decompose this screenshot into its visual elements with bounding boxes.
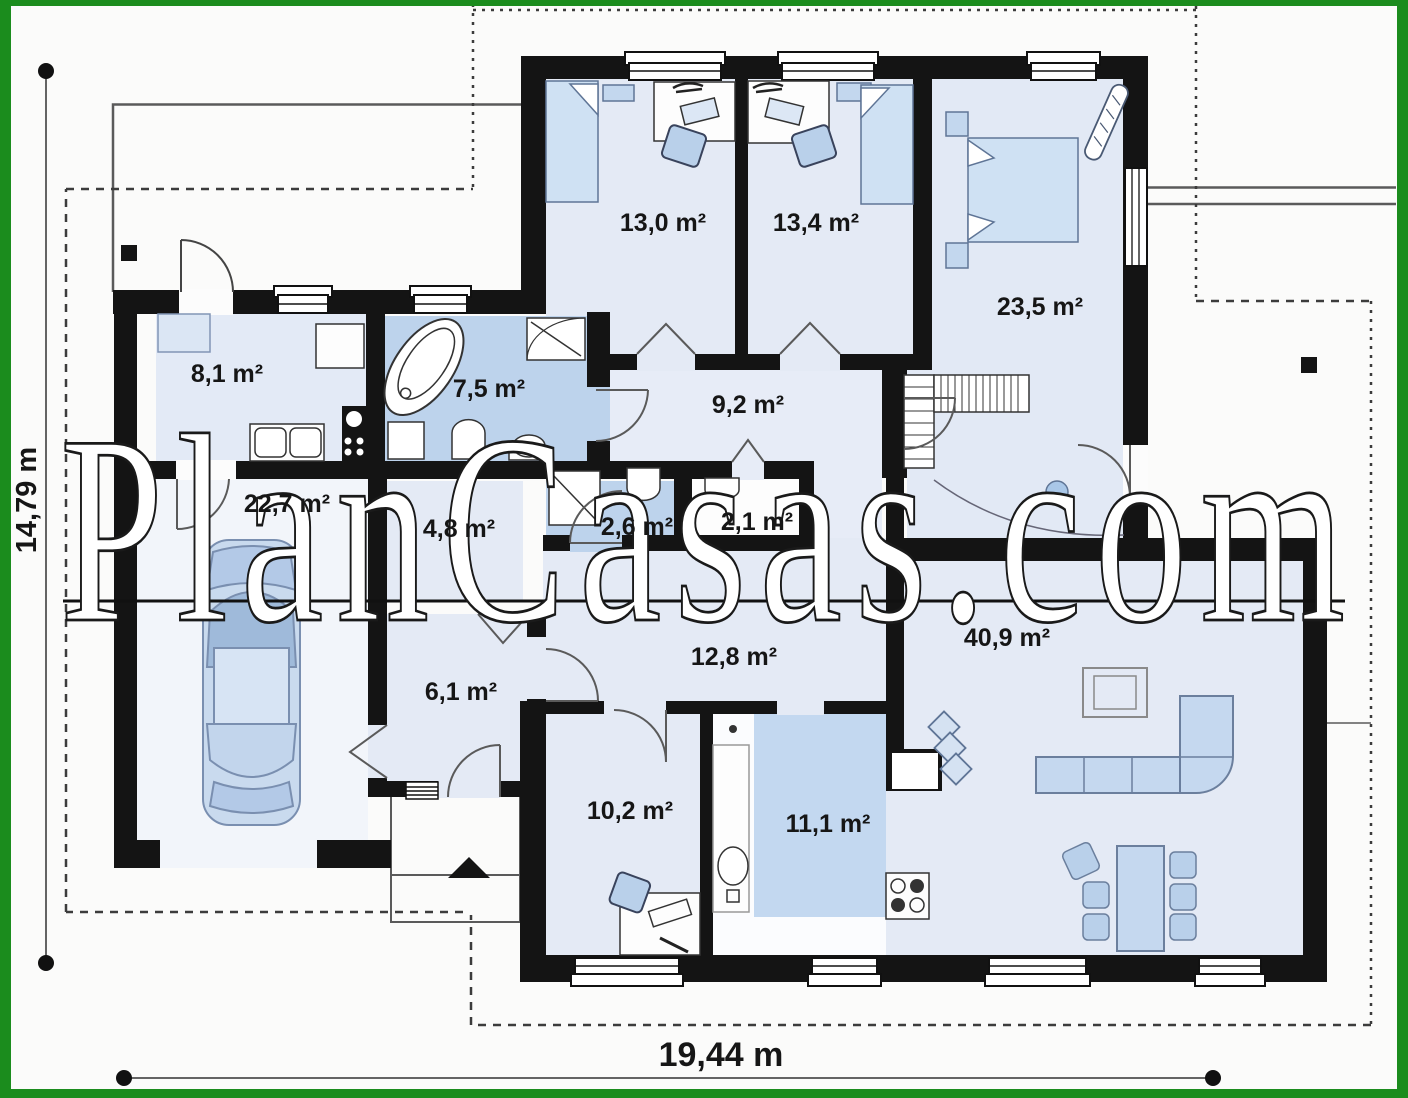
svg-text:19,44 m: 19,44 m [659, 1036, 784, 1074]
svg-text:13,4 m²: 13,4 m² [773, 209, 859, 237]
svg-text:12,8 m²: 12,8 m² [691, 643, 777, 671]
svg-text:13,0 m²: 13,0 m² [620, 209, 706, 237]
svg-text:11,1 m²: 11,1 m² [786, 810, 871, 838]
svg-text:2,6 m²: 2,6 m² [601, 513, 673, 541]
svg-text:2,1 m²: 2,1 m² [721, 508, 793, 536]
svg-text:14,79 m: 14,79 m [11, 447, 43, 553]
svg-text:6,1 m²: 6,1 m² [425, 678, 497, 706]
svg-text:23,5 m²: 23,5 m² [997, 293, 1083, 321]
svg-text:PlanCasas.com: PlanCasas.com [60, 381, 1345, 679]
svg-text:40,9 m²: 40,9 m² [964, 624, 1050, 652]
svg-text:7,5 m²: 7,5 m² [453, 375, 525, 403]
svg-text:4,8 m²: 4,8 m² [423, 515, 495, 543]
svg-text:10,2 m²: 10,2 m² [587, 797, 673, 825]
svg-text:8,1 m²: 8,1 m² [191, 360, 263, 388]
svg-text:9,2 m²: 9,2 m² [712, 391, 784, 419]
svg-text:22,7 m²: 22,7 m² [244, 490, 330, 518]
